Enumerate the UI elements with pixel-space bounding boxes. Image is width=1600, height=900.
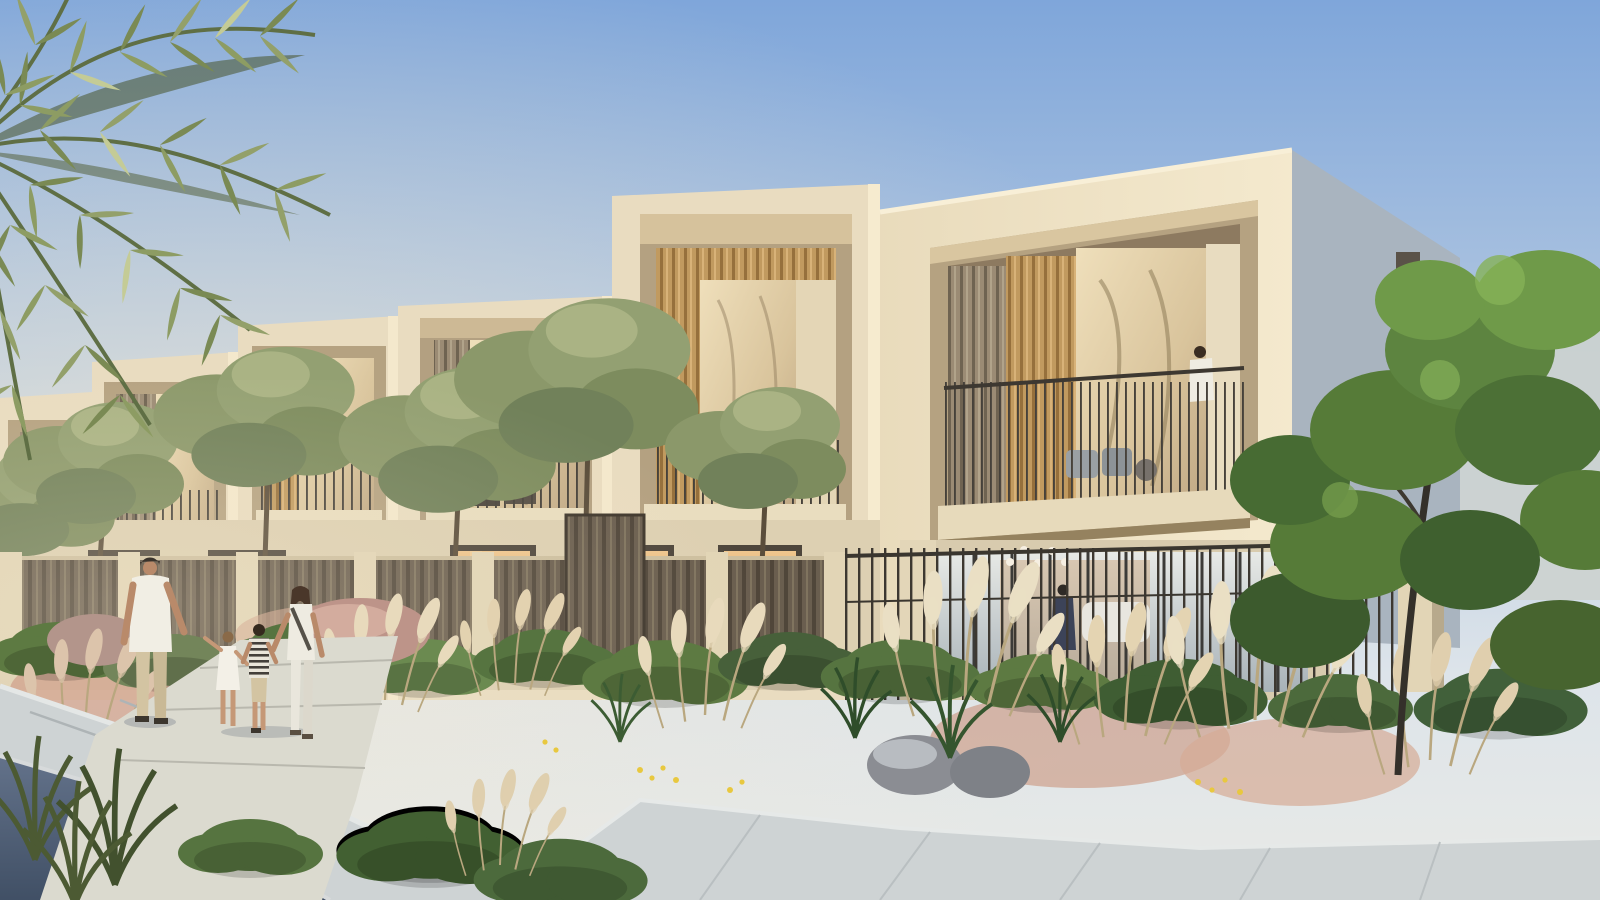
frame-top-beam xyxy=(640,214,852,244)
pink-grass-cloud xyxy=(1180,718,1420,806)
pant-leg xyxy=(303,660,313,734)
scene-svg xyxy=(0,0,1600,900)
shadow xyxy=(124,716,176,728)
shoe xyxy=(290,730,301,735)
head xyxy=(253,624,265,636)
head xyxy=(143,561,157,575)
person-head xyxy=(1194,346,1206,358)
head xyxy=(223,632,234,643)
rendered-photo xyxy=(0,0,1600,900)
boulder-highlight xyxy=(873,739,937,769)
shoe xyxy=(251,728,261,733)
pant-leg xyxy=(136,652,150,716)
shorts xyxy=(251,678,267,702)
shoe xyxy=(135,716,149,722)
shoe xyxy=(154,718,168,724)
pant-leg xyxy=(153,652,167,718)
shoe xyxy=(302,734,313,739)
boulder xyxy=(950,746,1030,798)
